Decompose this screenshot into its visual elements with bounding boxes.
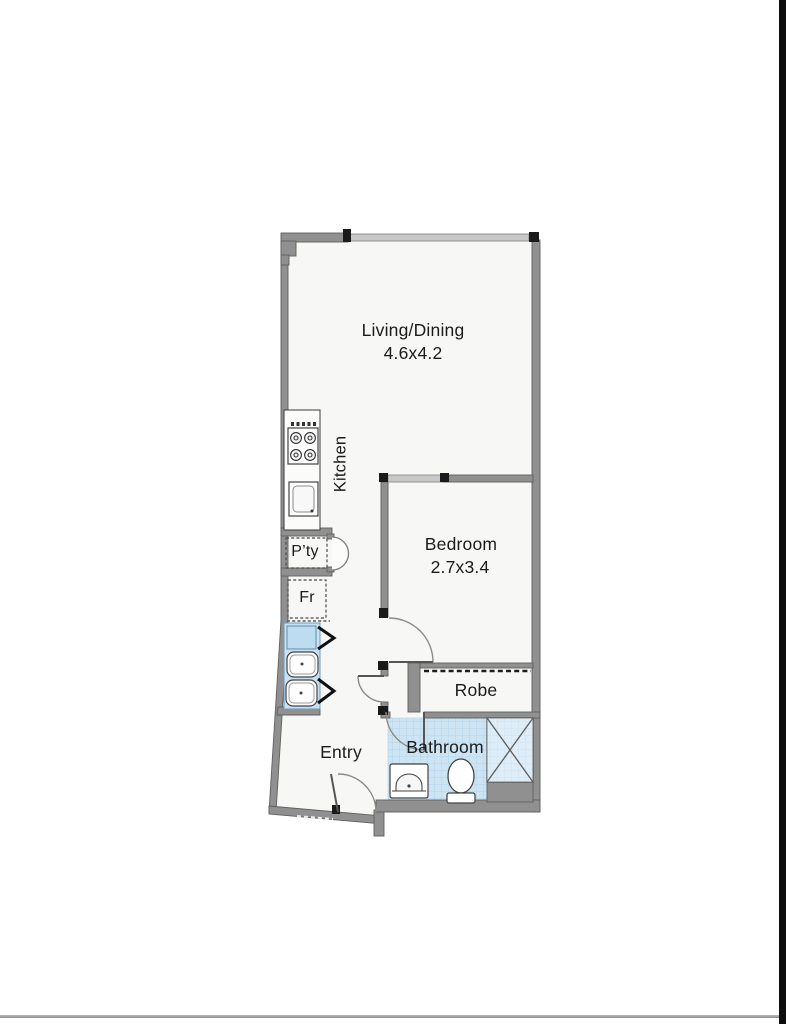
entry-label: Entry xyxy=(320,742,362,764)
wall-bedroom-top xyxy=(443,475,533,482)
toilet-icon xyxy=(448,759,474,793)
living-room-dimensions: 4.6x4.2 xyxy=(384,343,443,365)
pantry-label: P’ty xyxy=(291,542,318,562)
wall-robe-top xyxy=(420,663,533,668)
kitchen-label: Kitchen xyxy=(331,436,352,492)
wall-robe-divider xyxy=(408,663,420,712)
wall-left-notch-step xyxy=(281,255,289,265)
bathroom-label: Bathroom xyxy=(406,737,483,759)
right-edge-bar xyxy=(779,0,786,1024)
window-bedroom-icon xyxy=(388,475,443,482)
post-hall-top xyxy=(378,661,388,670)
wall-under-shower xyxy=(487,782,533,802)
bottom-divider-line xyxy=(0,1015,779,1018)
wall-bathroom-top-right xyxy=(424,712,540,718)
post-bedroom-window xyxy=(440,473,449,482)
wall-bedroom-left xyxy=(381,482,388,617)
washer-icon xyxy=(287,626,316,649)
bedroom-dimensions: 2.7x3.4 xyxy=(431,557,490,579)
post-bedroom-tl xyxy=(379,473,388,482)
floorplan-drawing xyxy=(0,0,786,1024)
fridge-label: Fr xyxy=(299,588,315,608)
living-room-label: Living/Dining xyxy=(362,320,465,342)
post-bedroom-door xyxy=(379,608,388,618)
post-top-right xyxy=(529,232,539,242)
bedroom-label: Bedroom xyxy=(425,534,497,556)
window-top-icon xyxy=(348,234,529,241)
page: Living/Dining 4.6x4.2 Kitchen P’ty Fr Be… xyxy=(0,0,786,1024)
post-top-mid xyxy=(343,229,351,242)
wall-left-notch xyxy=(281,241,296,256)
wall-pantry-stub xyxy=(281,568,332,576)
wall-entry-stub xyxy=(374,810,384,836)
robe-label: Robe xyxy=(455,680,498,702)
